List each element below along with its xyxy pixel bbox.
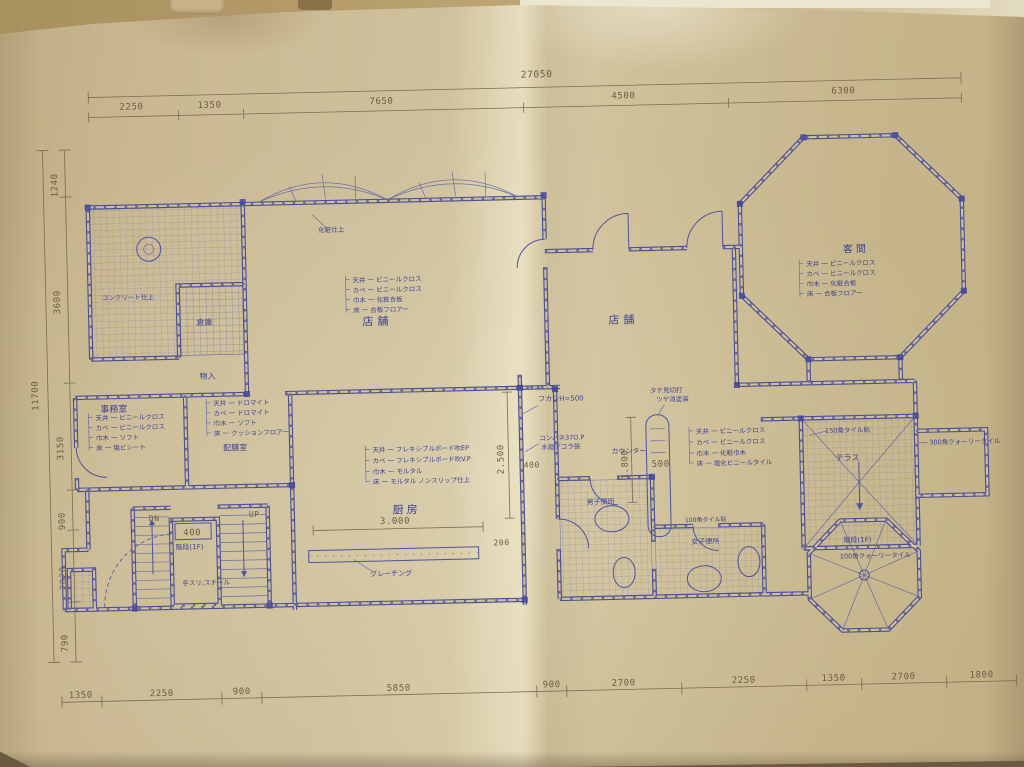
- stair-handrail-note: 手スリ:スチール: [182, 577, 230, 587]
- dim-top-seg-3: 7650: [369, 97, 393, 108]
- porch-step-hatch: [70, 572, 94, 609]
- note-counter: カウンター: [611, 446, 646, 456]
- finish-kitchen-3: 巾木 一 モルタル: [373, 466, 423, 476]
- finish-kitchen-2: カベ 一 フレキシブルボード吹V.P: [372, 454, 470, 465]
- note-tile300: 300角クォーリータイル: [929, 436, 1001, 447]
- dim-bot-seg-10: 1800: [969, 670, 993, 681]
- dim-left-seg-6: 790: [60, 634, 70, 652]
- dim-top-seg-2: 1350: [197, 101, 221, 112]
- finish-lounge-3: 巾木 一 化粧巾木: [696, 448, 746, 458]
- finish-office-4: 床 一 塩ビシート: [96, 442, 146, 452]
- note-mikiri: タテ見切打: [650, 385, 683, 395]
- dim-left-seg-2: 3600: [53, 290, 64, 314]
- finish-pantry-2: カベ 一 ドロマイト: [213, 409, 269, 418]
- finish-lounge-2: カベ 一 ビニールクロス: [696, 436, 765, 447]
- stair-dn-label: DN: [149, 514, 160, 523]
- note-tile150: 150角タイル貼: [825, 425, 871, 435]
- finish-kitchen-4: 床 一 モルタル ノンスリップ仕上: [373, 475, 471, 486]
- dim-left-seg-5: 2020: [59, 566, 70, 590]
- dim-bot-seg-8: 1350: [822, 674, 846, 685]
- finish-guest-2: カベ 一 ビニールクロス: [806, 268, 875, 279]
- dim-left-seg-4: 900: [58, 512, 68, 530]
- dim-top-seg-1: 2250: [119, 102, 143, 113]
- dim-400: 400: [524, 460, 540, 469]
- room-label-stair-left: 階段(1F): [175, 542, 203, 552]
- toilet-men-hatch: [559, 479, 653, 597]
- floorplan-drawing: 27050 2250 1350 7650 4500 6300 11700 124…: [0, 0, 1024, 767]
- counter-ticks: [650, 429, 666, 453]
- note-concrete: コンクリート仕上: [102, 292, 155, 302]
- finish-lounge-4: 床 一 塩化ビニールタイル: [697, 457, 773, 468]
- room-label-closet: 倉庫: [196, 317, 212, 327]
- finish-shop-1: 天井 一 ビニールクロス: [352, 274, 421, 285]
- dim-counter-500: 500: [652, 459, 670, 469]
- finish-guest-3: 巾木 一 化粧合板: [807, 278, 857, 288]
- room-label-terrace: テラス: [836, 453, 860, 463]
- note-tosou: ツヤ消塗装: [656, 394, 689, 404]
- finish-shop-3: 巾木 一 化粧合板: [353, 294, 403, 304]
- dim-left-total: 11700: [31, 381, 42, 411]
- dim-top-seg-4: 4500: [611, 91, 635, 102]
- note-keshou: 化粧仕上: [318, 225, 345, 235]
- finish-shop-2: カベ 一 ビニールクロス: [353, 284, 422, 295]
- note-fukashi: フカシH=500: [538, 394, 584, 403]
- dim-200: 200: [493, 538, 509, 547]
- dim-bot-seg-6: 2700: [612, 678, 636, 689]
- dim-bot-seg-7: 2250: [732, 676, 756, 687]
- dim-bot-seg-1: 1350: [69, 691, 93, 702]
- room-label-storage: 物入: [199, 371, 215, 381]
- dim-bot-seg-9: 2700: [892, 672, 916, 683]
- dim-bot-seg-3: 900: [233, 687, 251, 697]
- finish-lounge-1: 天井 一 ビニールクロス: [696, 425, 765, 436]
- note-tile100: 100角クォーリータイル: [840, 550, 912, 561]
- finish-office-1: 天井 一 ビニールクロス: [95, 412, 164, 423]
- finish-shop-4: 床 一 合板フロアー: [353, 304, 409, 314]
- room-label-toilet-women: 女子便所: [691, 536, 719, 546]
- scanned-blueprint-photo: { "dimensions": { "top": { "total": "270…: [0, 0, 1024, 767]
- note-grating: グレーチング: [370, 568, 412, 578]
- dim-bot-seg-2: 2250: [150, 689, 174, 700]
- finish-guest-1: 天井 一 ビニールクロス: [806, 258, 875, 269]
- dim-bot-seg-4: 5850: [387, 683, 411, 694]
- room-label-shop-left: 店舗: [362, 314, 392, 329]
- finish-guest-4: 床 一 合板フロアー: [807, 288, 863, 298]
- dim-top-seg-5: 6300: [831, 86, 855, 97]
- room-label-toilet-men: 男子便所: [586, 497, 614, 507]
- finish-office-2: カベ 一 ビニールクロス: [96, 422, 165, 433]
- finish-pantry-1: 天井 一 ドロマイト: [213, 398, 269, 408]
- dim-kitchen-3000: 3.000: [380, 516, 410, 527]
- finish-pantry-4: 床 一 クッションフロアー: [214, 427, 289, 438]
- finish-kitchen-1: 天井 一 フレキシブルボード吹EP: [372, 443, 469, 454]
- kitchen-grating: [309, 547, 479, 563]
- finish-office-3: 巾木 一 ソフト: [96, 432, 139, 442]
- dim-bot-seg-5: 900: [543, 680, 561, 690]
- room-label-shop-center: 店舗: [608, 312, 638, 327]
- dim-left-seg-1: 1240: [50, 173, 61, 197]
- finish-pantry-3: 巾木 一 ソフト: [214, 418, 257, 428]
- room-label-kitchen: 厨房: [393, 503, 421, 517]
- dim-left-seg-3: 3150: [56, 436, 67, 460]
- dim-stair-400: 400: [183, 528, 201, 538]
- room-label-stair-right: 階段(1F): [843, 535, 871, 545]
- dim-kitchen-2500: 2.500: [496, 444, 507, 474]
- room-label-guest: 客間: [843, 242, 869, 256]
- stair-up-label: UP: [249, 510, 260, 519]
- room-label-pantry: 配膳室: [223, 442, 247, 453]
- note-konpane: コンパネ37O.P: [539, 433, 584, 442]
- note-tile100b: 100角タイル貼: [685, 515, 727, 524]
- note-decora: 水廻デコラ張: [541, 441, 581, 451]
- dim-top-total: 27050: [521, 69, 553, 81]
